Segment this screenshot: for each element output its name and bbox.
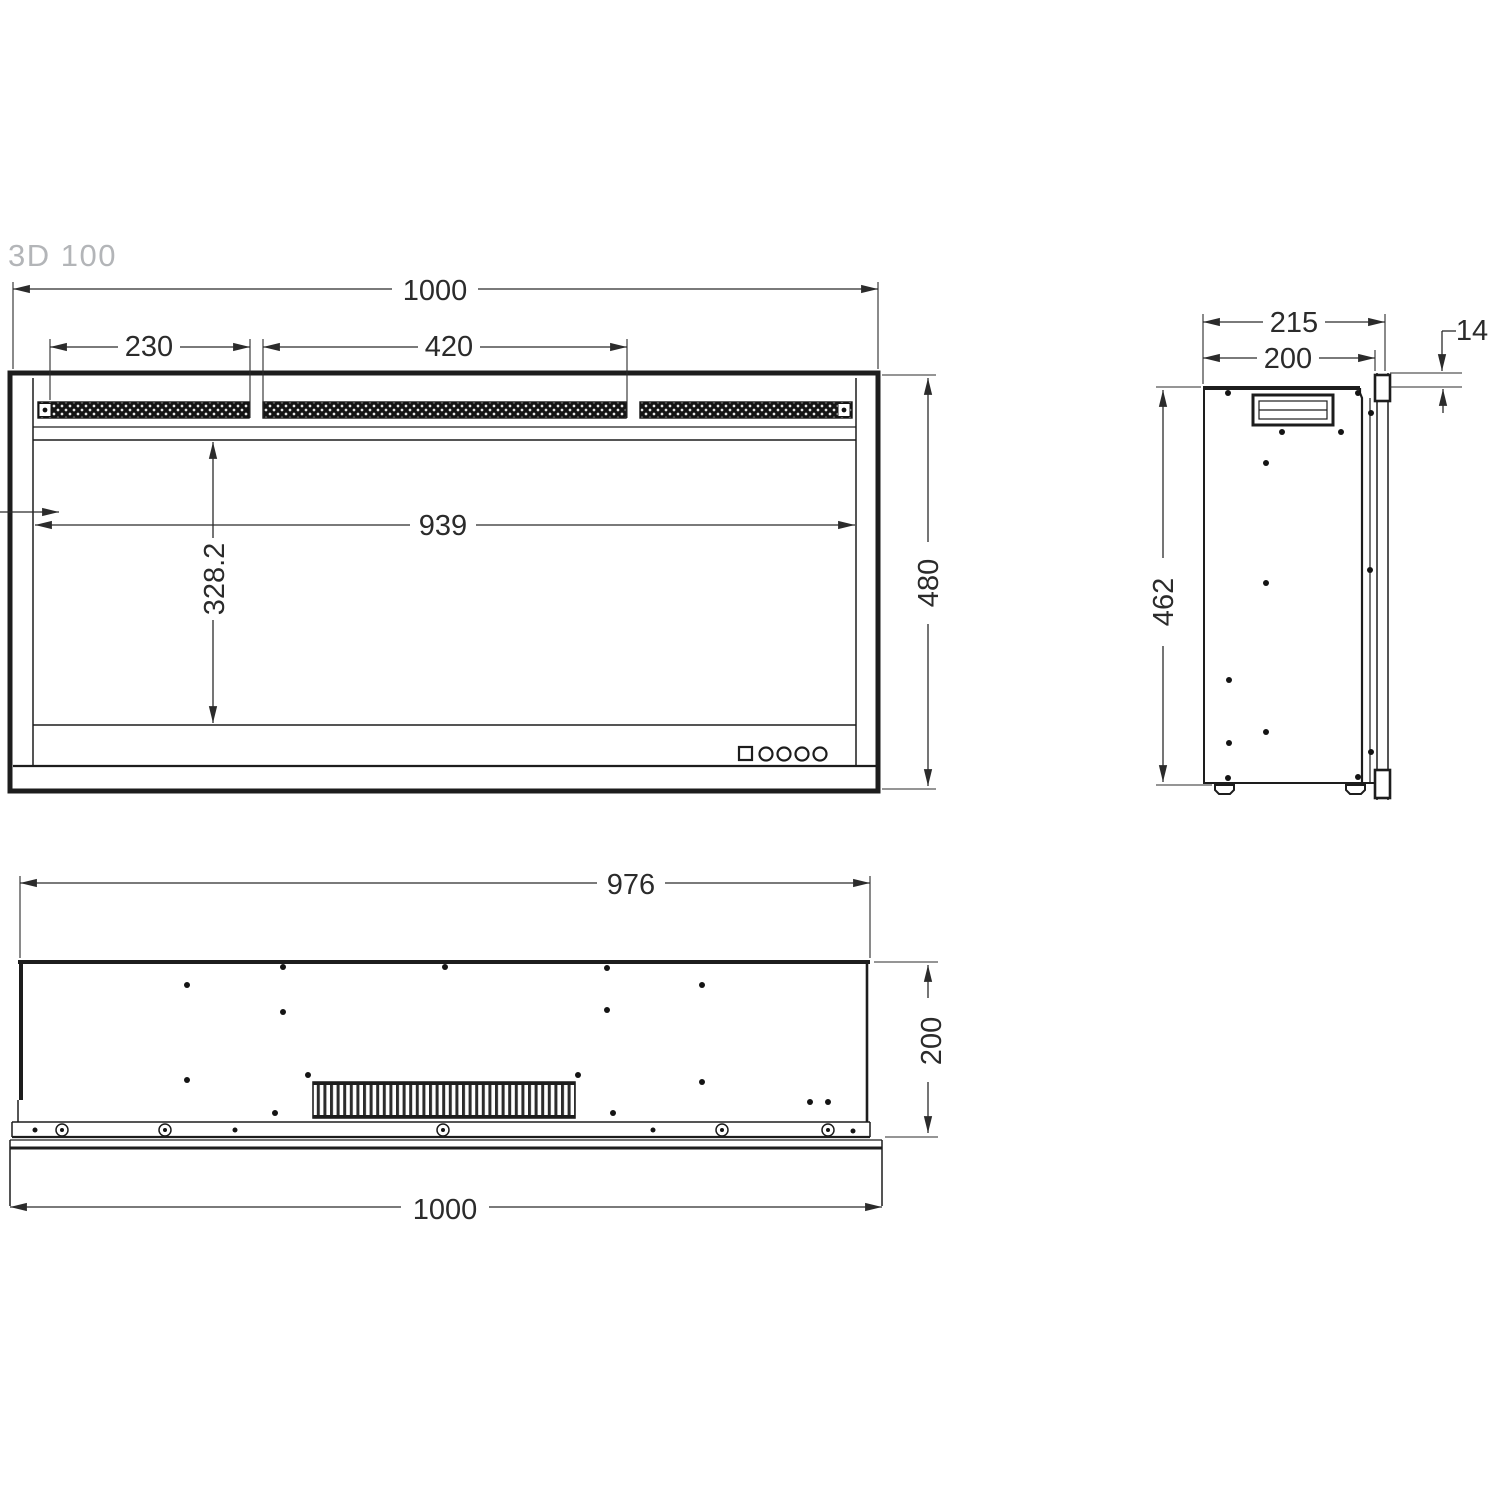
dim-bottom-body-width: 976: [20, 866, 870, 958]
bottom-mounting-rail: [12, 1122, 870, 1137]
bottom-view: 976 200 1000: [10, 866, 948, 1226]
side-body-fill: [1204, 388, 1361, 783]
side-view: 215 200 14 462: [1144, 306, 1488, 800]
drawing-title: 3D 100: [8, 238, 117, 273]
control-button-icon: [814, 748, 827, 761]
dim-label-side-flange-thickness: 14: [1456, 315, 1488, 347]
side-foot-right: [1346, 785, 1365, 794]
side-flange-bottom-cap: [1375, 770, 1390, 798]
dim-bottom-overall-width: 1000: [10, 1191, 882, 1226]
front-grille-left-segment: [38, 402, 249, 418]
dim-side-body-height: 462: [1144, 387, 1212, 785]
rail-screws: [56, 1124, 834, 1136]
dim-label-bottom-overall-width: 1000: [413, 1194, 478, 1226]
side-flange-strip: [1377, 373, 1388, 800]
front-grille-right-segment: [640, 402, 852, 418]
front-grille-center-segment: [263, 402, 626, 418]
dim-label-front-center-grille: 420: [425, 331, 473, 363]
control-button-icon: [778, 748, 791, 761]
dim-label-side-body-depth: 200: [1264, 343, 1312, 375]
dim-label-bottom-body-width: 976: [607, 869, 655, 901]
front-grille-left-screw: [43, 408, 48, 413]
dim-label-front-overall-height: 480: [913, 559, 945, 607]
front-grille-right-screw: [842, 408, 847, 413]
dim-label-front-opening-height: 328.2: [199, 543, 231, 616]
side-flange-top-cap: [1375, 375, 1390, 401]
technical-drawing-page: 3D 100 1000: [0, 0, 1500, 1500]
dim-label-side-body-height: 462: [1148, 578, 1180, 626]
dim-label-bottom-body-depth: 200: [916, 1017, 948, 1065]
dim-side-flange-thickness: 14: [1390, 315, 1488, 413]
dim-side-body-depth: 200: [1203, 342, 1375, 375]
dim-bottom-body-depth: 200: [874, 962, 948, 1137]
dim-label-side-overall-depth: 215: [1270, 307, 1318, 339]
dim-label-front-overall-width: 1000: [403, 275, 468, 307]
side-foot-left: [1215, 785, 1234, 794]
dim-label-front-opening-width: 939: [419, 510, 467, 542]
dim-front-overall-height: 480: [882, 375, 945, 789]
front-view: 1000 230 420 939 328.2: [0, 272, 945, 791]
technical-drawing: 3D 100 1000: [0, 0, 1500, 1500]
bottom-slat-vent: [313, 1082, 575, 1118]
dim-label-front-left-grille: 230: [125, 331, 173, 363]
control-button-icon: [796, 748, 809, 761]
front-outer-frame: [10, 373, 878, 791]
control-button-icon: [760, 748, 773, 761]
power-button-icon: [739, 747, 752, 760]
